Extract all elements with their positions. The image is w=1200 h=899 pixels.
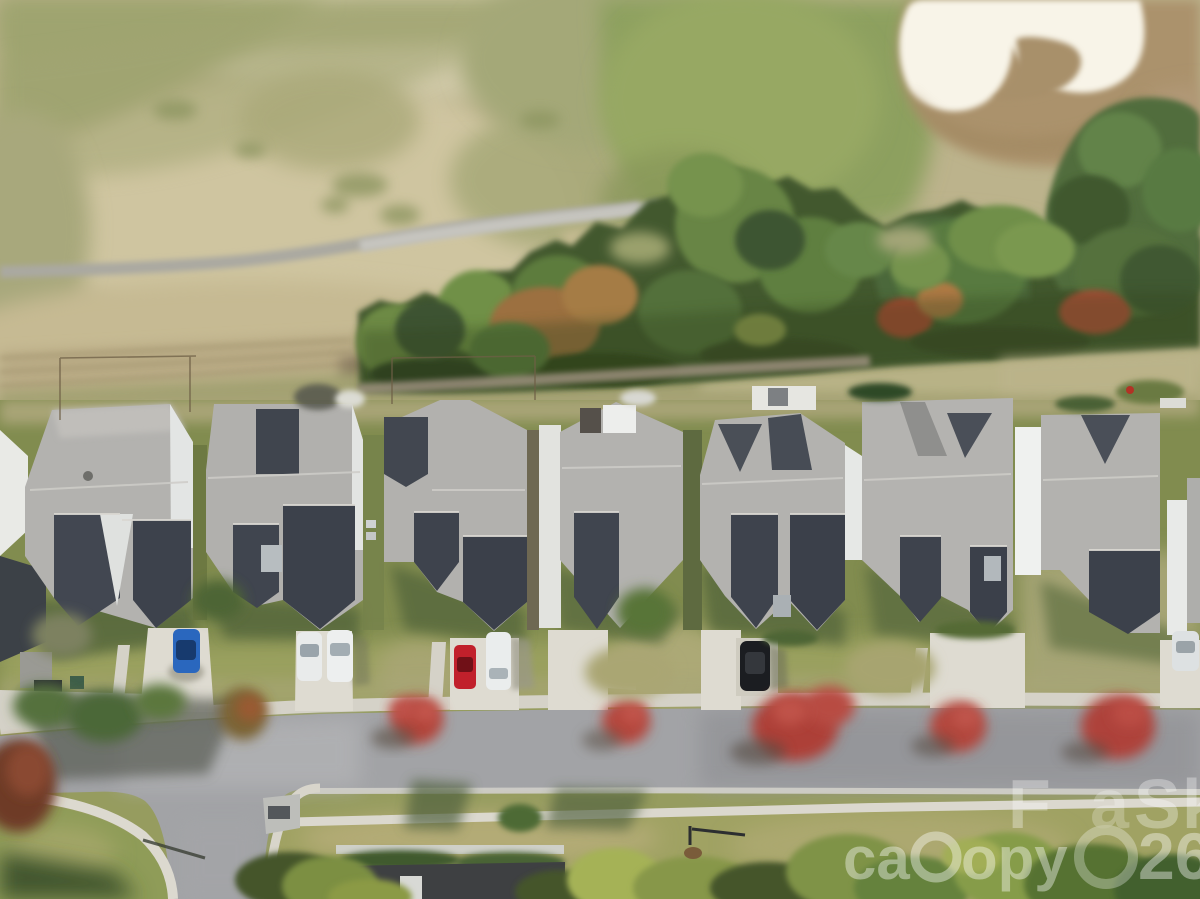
svg-text:S: S — [1134, 765, 1181, 843]
svg-text:k: k — [1182, 765, 1200, 843]
svg-text:ca: ca — [843, 825, 910, 892]
svg-text:a: a — [1090, 765, 1130, 843]
svg-text:F: F — [1008, 765, 1051, 843]
